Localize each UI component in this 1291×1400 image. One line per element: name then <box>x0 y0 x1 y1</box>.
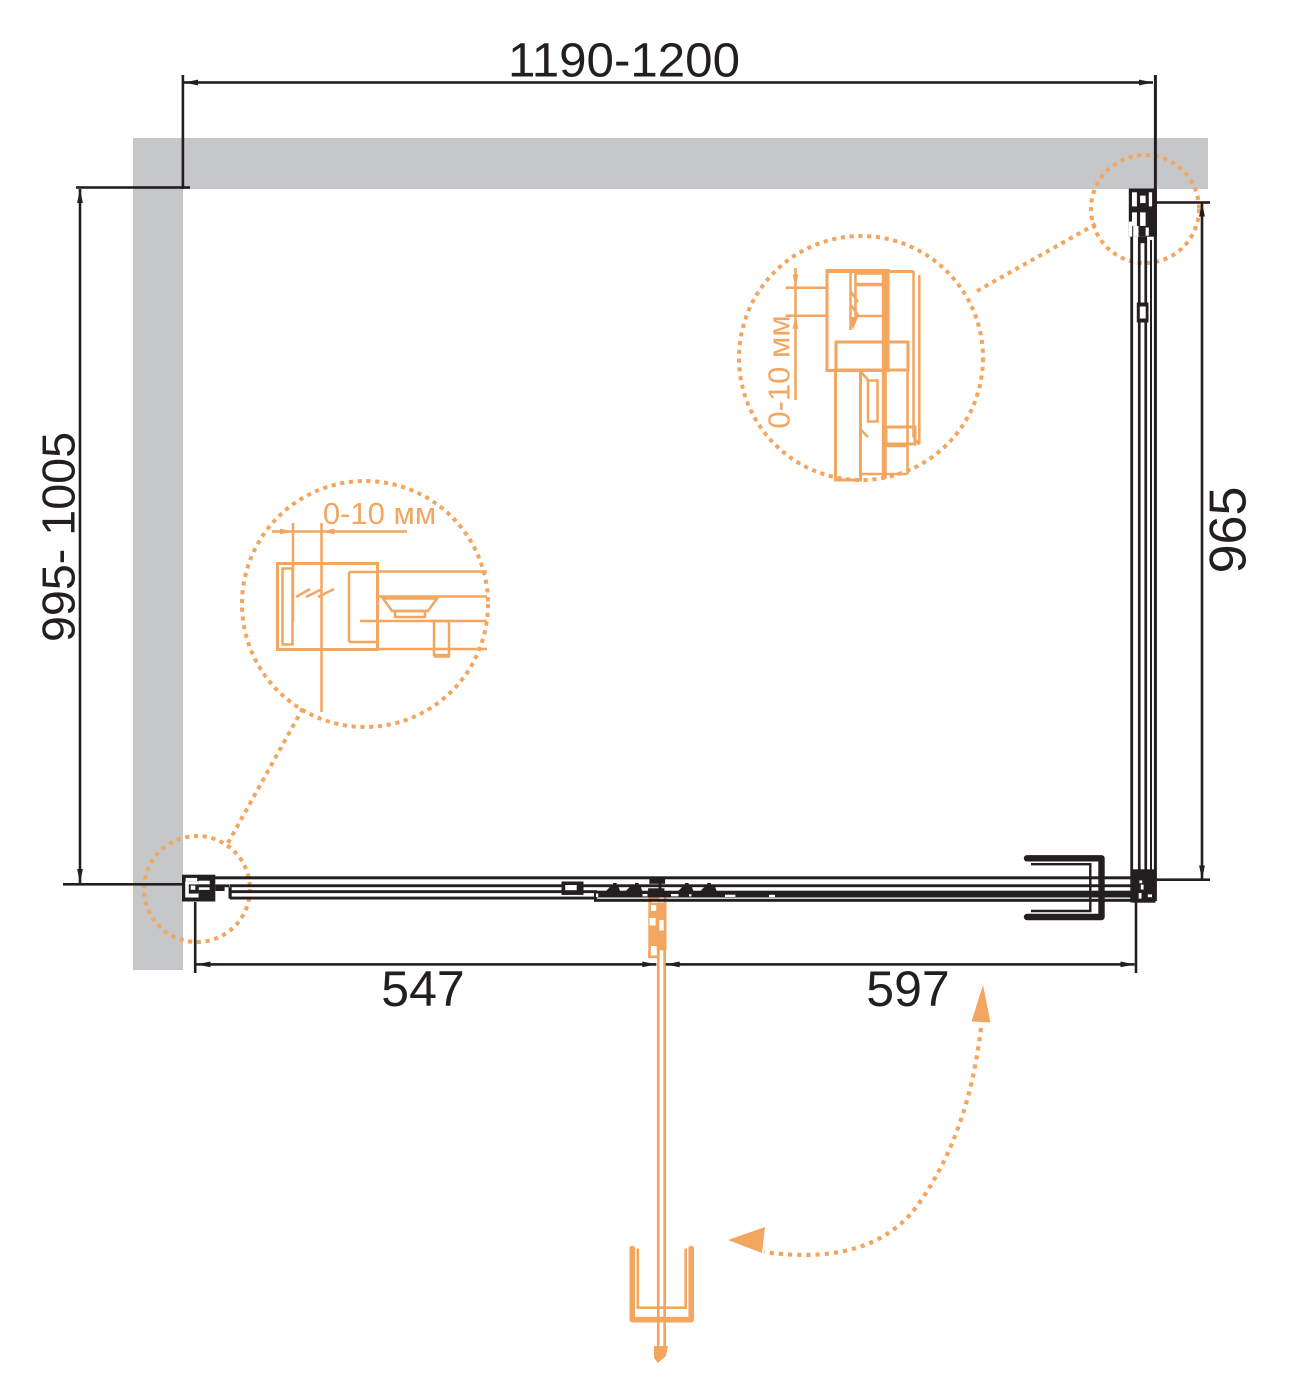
svg-text:0-10 мм: 0-10 мм <box>762 315 797 428</box>
svg-text:0-10 мм: 0-10 мм <box>323 496 436 531</box>
svg-text:965: 965 <box>1200 487 1258 574</box>
svg-text:547: 547 <box>381 961 464 1017</box>
svg-text:995- 1005: 995- 1005 <box>33 432 85 642</box>
svg-text:597: 597 <box>866 961 949 1017</box>
svg-text:1190-1200: 1190-1200 <box>508 34 740 88</box>
